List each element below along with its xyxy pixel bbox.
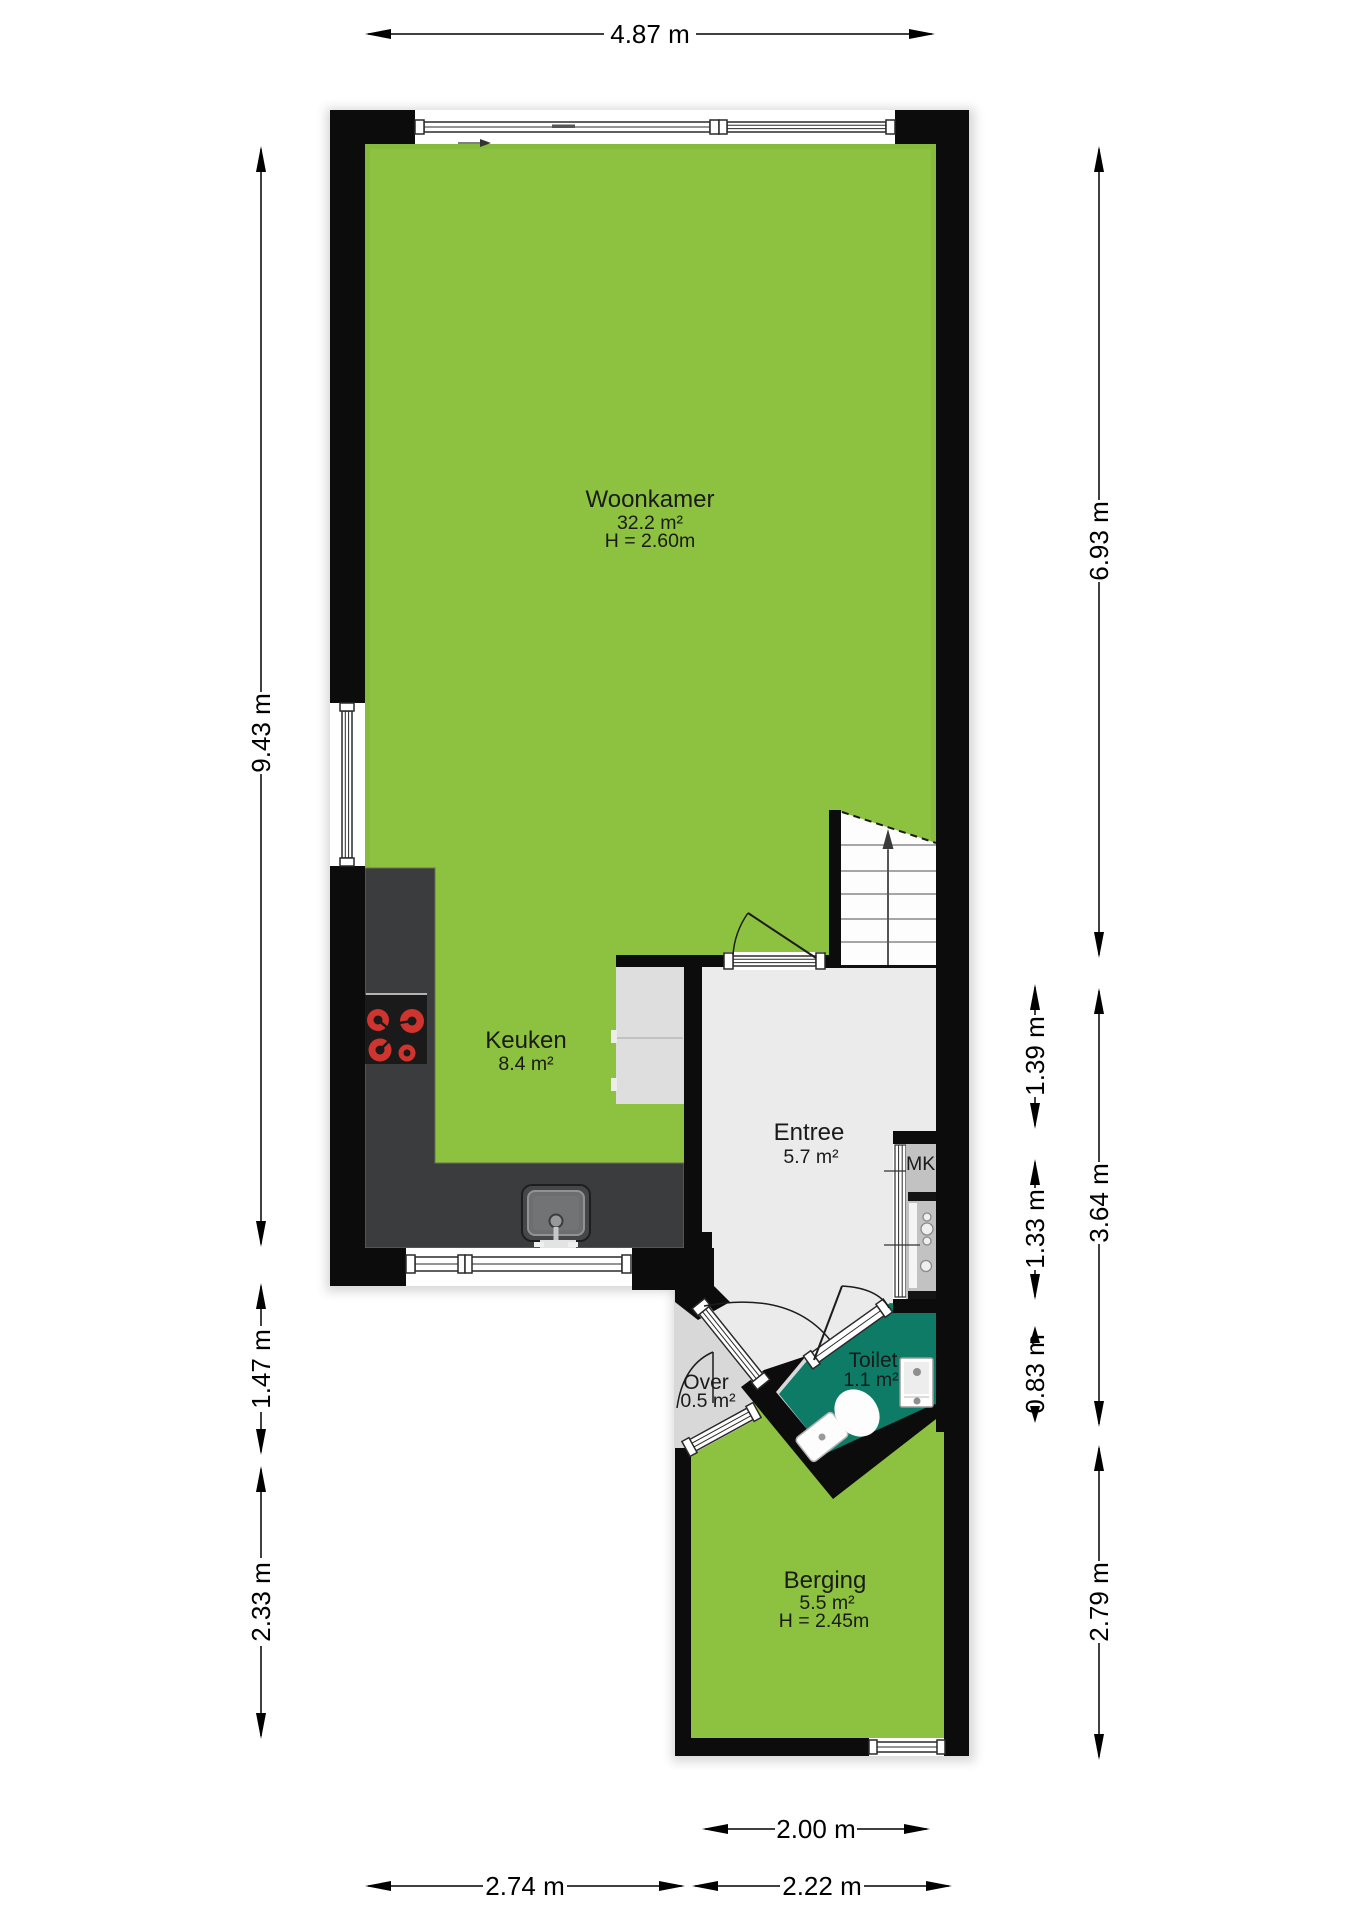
svg-text:Woonkamer: Woonkamer — [586, 486, 715, 513]
svg-text:1.33 m: 1.33 m — [1020, 1189, 1050, 1269]
svg-text:2.79 m: 2.79 m — [1084, 1562, 1114, 1642]
svg-text:2.74 m: 2.74 m — [485, 1871, 565, 1901]
svg-text:3.64 m: 3.64 m — [1084, 1163, 1114, 1243]
svg-text:MK: MK — [906, 1153, 935, 1175]
svg-text:0.83 m: 0.83 m — [1020, 1334, 1050, 1414]
svg-text:H = 2.60m: H = 2.60m — [605, 530, 696, 552]
svg-text:2.00 m: 2.00 m — [776, 1814, 856, 1844]
svg-text:1.1 m²: 1.1 m² — [843, 1369, 899, 1391]
svg-text:2.33 m: 2.33 m — [246, 1562, 276, 1642]
svg-text:Keuken: Keuken — [485, 1027, 566, 1054]
svg-text:1.47 m: 1.47 m — [246, 1329, 276, 1409]
svg-text:0.5 m²: 0.5 m² — [680, 1390, 736, 1412]
svg-text:Entree: Entree — [774, 1119, 845, 1146]
svg-text:4.87 m: 4.87 m — [610, 19, 690, 49]
svg-text:2.22 m: 2.22 m — [782, 1871, 862, 1901]
svg-text:6.93 m: 6.93 m — [1084, 501, 1114, 581]
svg-text:1.39 m: 1.39 m — [1020, 1016, 1050, 1096]
svg-text:8.4 m²: 8.4 m² — [498, 1053, 554, 1075]
svg-text:5.7 m²: 5.7 m² — [783, 1146, 839, 1168]
svg-text:9.43 m: 9.43 m — [246, 693, 276, 773]
svg-text:H = 2.45m: H = 2.45m — [779, 1610, 870, 1632]
svg-text:Berging: Berging — [784, 1567, 867, 1594]
